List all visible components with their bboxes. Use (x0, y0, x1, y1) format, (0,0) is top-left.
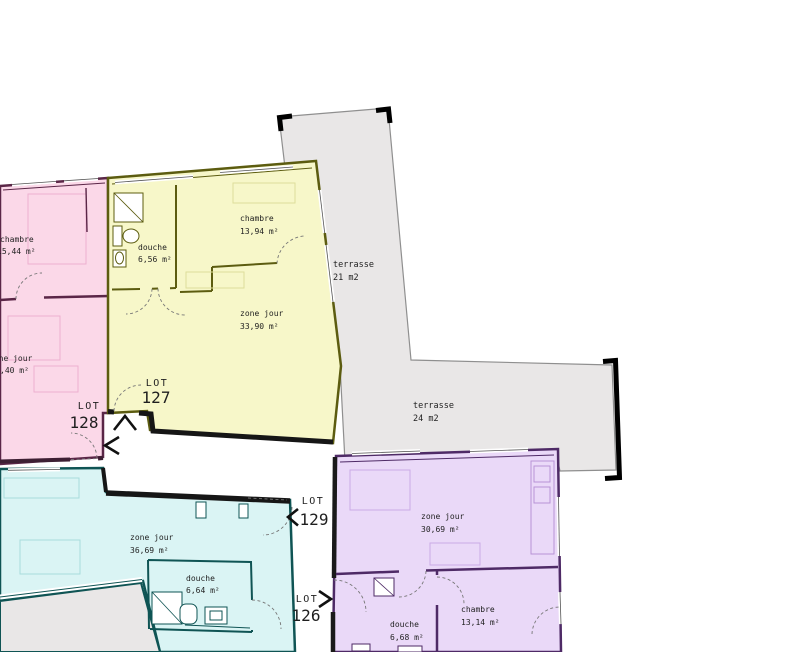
lot127-chambre-label: chambre (240, 214, 274, 223)
sink-icon (180, 604, 197, 624)
sink-icon (352, 644, 370, 651)
lot129-douche-label: douche (186, 574, 215, 583)
lot129-zonejour-label: zone jour (130, 533, 174, 542)
lot127-zonejour-label: zone jour (240, 309, 284, 318)
lot129-lot-word: LOT (302, 496, 325, 507)
toilet-bowl-icon (123, 229, 139, 243)
lot129-douche-area: 6,64 m² (186, 586, 220, 595)
lot128-bottom-wall (98, 458, 103, 459)
lot129-lot-number: 129 (300, 510, 329, 529)
lot126-corridor-wall (334, 457, 335, 578)
lot126-outline (333, 449, 561, 652)
lot128-bottom-wall (0, 460, 70, 462)
lot127-zonejour-area: 33,90 m² (240, 322, 279, 331)
lot126-chambre-label: chambre (461, 605, 495, 614)
lot129-pilaster (239, 504, 248, 518)
toilet-tank-icon (113, 226, 122, 246)
lot128-divider-wall (44, 296, 109, 298)
lot127-corridor-wall (108, 412, 114, 413)
lot126-douche-label: douche (390, 620, 419, 629)
terrace-24-name: terrasse (413, 401, 454, 411)
vanity-icon (398, 646, 422, 652)
lot126-chambre-area: 13,14 m² (461, 618, 500, 627)
lot126-lot-number: 126 (292, 606, 321, 625)
lot126-douche-area: 6,68 m² (390, 633, 424, 642)
floor-plan-canvas: terrasse 21 m2 terrasse 24 m2 chambre 15… (0, 0, 800, 652)
lot126-lot-word: LOT (296, 594, 319, 605)
lot129-zonejour-area: 36,69 m² (130, 546, 169, 555)
lot128-chambre-area: 15,44 m² (0, 247, 36, 256)
lot126-zonejour-label: zone jour (421, 512, 465, 521)
lot128-zonejour-label: zone jour (0, 354, 33, 363)
lot128-lot-number: 128 (70, 413, 99, 432)
floor-plan-svg: terrasse 21 m2 terrasse 24 m2 chambre 15… (0, 0, 800, 652)
vanity-basin-icon (210, 611, 222, 620)
unit-lot127: chambre 13,94 m² douche 6,56 m² zone jou… (108, 161, 341, 443)
lot127-chambre-area: 13,94 m² (240, 227, 279, 236)
lot127-douche-area: 6,56 m² (138, 255, 172, 264)
sink-basin-icon (116, 252, 124, 264)
unit-lot128: chambre 15,44 m² zone jour ,40 m² LOT 12… (0, 178, 109, 464)
terrace-24-area: 24 m2 (413, 414, 439, 424)
lot128-divider-wall (0, 299, 16, 300)
lot127-douche-wall (112, 289, 140, 290)
lot128-chambre-label: chambre (0, 235, 34, 244)
lot128-zonejour-area: ,40 m² (0, 366, 29, 375)
lot129-pilaster (196, 502, 206, 518)
terrace-21-name: terrasse (333, 260, 374, 270)
lot127-lot-number: 127 (142, 388, 171, 407)
lot128-wardrobe-line (86, 188, 87, 232)
lot127-douche-label: douche (138, 243, 167, 252)
lot126-zonejour-area: 30,69 m² (421, 525, 460, 534)
terrace-21-area: 21 m2 (333, 273, 359, 283)
unit-lot126: zone jour 30,69 m² douche 6,68 m² chambr… (333, 449, 561, 652)
lot128-lot-word: LOT (78, 401, 101, 412)
